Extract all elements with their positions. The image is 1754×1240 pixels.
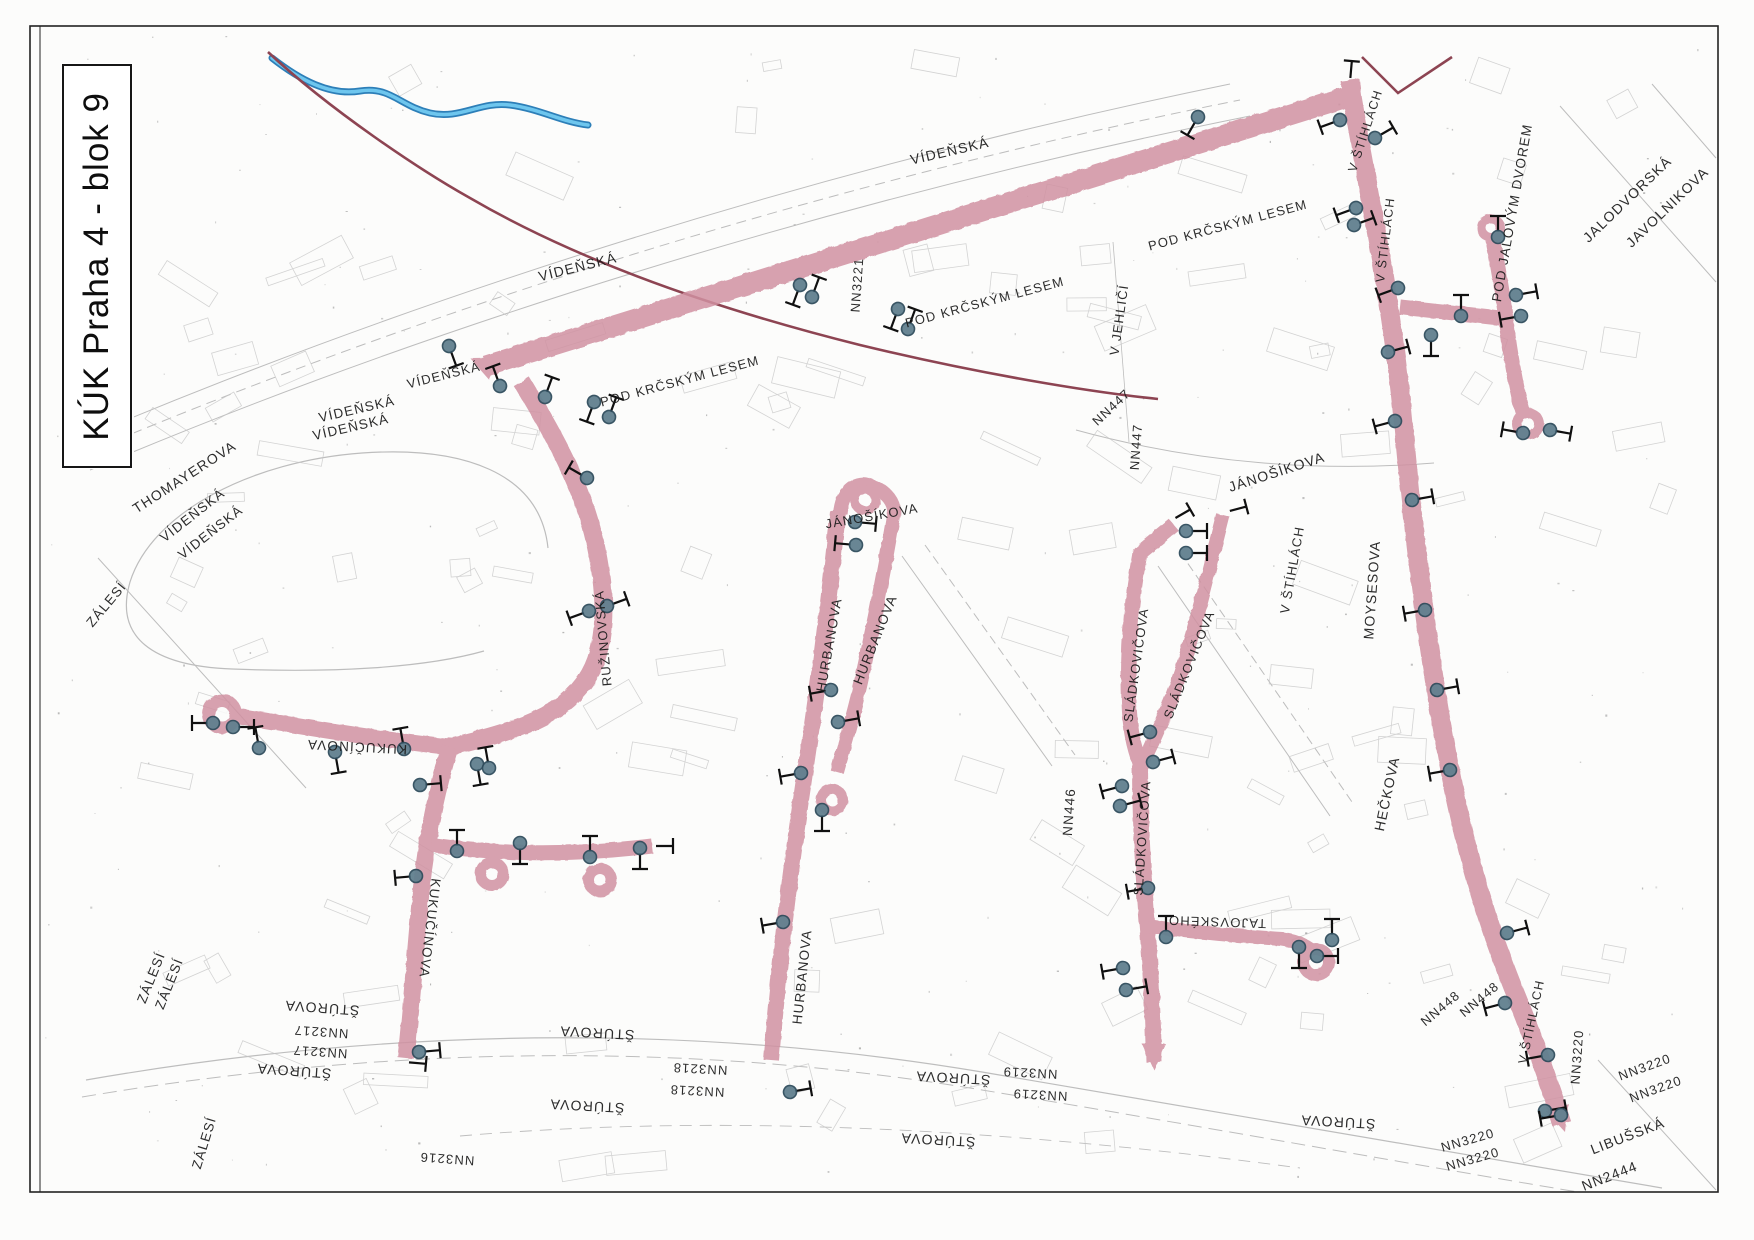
marker-tee: [814, 815, 830, 831]
building-outline: [955, 756, 1004, 794]
speckle: [95, 813, 96, 814]
building-outline: [1612, 422, 1665, 451]
speckle: [418, 1142, 420, 1144]
marker-dot: [634, 842, 647, 855]
speckle: [972, 352, 974, 354]
speckle: [235, 529, 236, 531]
speckle: [372, 1078, 374, 1079]
speckle: [72, 680, 73, 682]
speckle: [746, 302, 747, 304]
marker-dot: [1542, 422, 1557, 437]
speckle: [922, 128, 924, 130]
building-outline: [1650, 483, 1677, 514]
speckle: [250, 652, 252, 654]
building-outline: [389, 64, 422, 96]
speckle: [149, 1111, 150, 1112]
speckle: [1503, 848, 1504, 850]
speckle: [619, 286, 621, 288]
building-outline: [681, 546, 712, 579]
building-outline: [1267, 328, 1335, 371]
street-label: POD KRČSKÝM LESEM: [599, 352, 761, 409]
background-street-line: [90, 116, 1250, 470]
speckle: [1127, 186, 1128, 188]
building-outline: [476, 521, 497, 537]
street-label: NN3217: [293, 1023, 349, 1042]
speckle: [794, 224, 796, 225]
building-outline: [1001, 617, 1068, 657]
street-label: MOYSESOVA: [1360, 540, 1383, 640]
building-outline: [457, 568, 483, 593]
speckle: [430, 526, 431, 528]
street-label: NN3216: [419, 1150, 475, 1169]
speckle: [773, 429, 775, 431]
speckle: [1459, 347, 1461, 348]
building-outline: [1533, 341, 1586, 370]
speckle: [259, 104, 260, 105]
building-outline: [359, 256, 396, 280]
building-outline: [266, 258, 325, 285]
tee-symbol: [1228, 499, 1249, 519]
speckle: [628, 505, 629, 507]
speckle: [1119, 417, 1121, 419]
marker-dot: [1114, 778, 1130, 794]
marker-dot: [514, 837, 527, 850]
speckle: [340, 267, 341, 268]
building-outline: [747, 384, 800, 428]
marker-dot: [816, 804, 829, 817]
background-street-line: [1652, 84, 1716, 158]
speckle: [747, 269, 749, 270]
speckle: [332, 647, 334, 648]
building-outline: [1513, 1123, 1562, 1163]
speckle: [1322, 412, 1324, 414]
building-outline: [958, 517, 1014, 550]
speckle: [1495, 536, 1496, 537]
speckle: [760, 858, 761, 860]
speckle: [562, 632, 564, 633]
speckle: [158, 950, 159, 951]
speckle: [1034, 837, 1036, 839]
speckle: [661, 1078, 663, 1080]
building-outline: [170, 557, 203, 588]
marker-tee: [1191, 545, 1207, 561]
speckle: [347, 444, 348, 446]
street-label: POD JALOVÝM DVOREM: [1489, 123, 1535, 304]
building-outline: [386, 811, 411, 833]
speckle: [48, 924, 50, 925]
marker-dot: [584, 851, 597, 864]
speckle: [1352, 584, 1353, 586]
building-outline: [1600, 327, 1640, 358]
survey-marker: [1542, 421, 1572, 442]
speckle: [1081, 630, 1083, 632]
building-outline: [1178, 156, 1247, 193]
speckle: [152, 37, 153, 38]
speckle: [1453, 1087, 1454, 1088]
speckle: [549, 1030, 551, 1032]
speckle: [987, 917, 988, 919]
street-labels: VÍDEŇSKÁVÍDEŇSKÁVÍDEŇSKÁVÍDEŇSKÁVÍDEŇSKÁ…: [83, 88, 1711, 1194]
speckle: [157, 1140, 159, 1141]
speckle: [430, 984, 431, 986]
street-label: NN3220: [1568, 1029, 1587, 1085]
speckle: [1044, 104, 1046, 105]
speckle: [848, 1069, 850, 1070]
marker-dot: [1160, 931, 1173, 944]
turnaround-loop-hole: [486, 868, 498, 880]
speckle: [441, 71, 443, 72]
speckle: [278, 701, 279, 702]
building-outline: [1470, 57, 1511, 94]
marker-dot: [890, 301, 907, 318]
building-outline: [184, 318, 213, 342]
street-label: V ŠTÍHLÁCH: [1277, 525, 1307, 615]
speckle: [727, 584, 728, 586]
speckle: [1534, 859, 1535, 860]
street-label: NN2444: [1579, 1158, 1639, 1194]
speckle: [841, 1034, 842, 1035]
route-arrowhead: [1142, 1044, 1166, 1070]
speckle: [894, 824, 896, 826]
speckle: [589, 945, 590, 946]
speckle: [232, 1160, 233, 1161]
building-outline: [762, 60, 782, 72]
street-label: THOMAYEROVA: [130, 438, 239, 517]
speckle: [706, 414, 707, 416]
speckle: [1109, 1116, 1111, 1118]
speckle: [995, 58, 997, 60]
building-outline: [1269, 665, 1313, 689]
speckle: [507, 333, 509, 335]
marker-dot: [1311, 950, 1324, 963]
tee-symbol: [1342, 60, 1359, 78]
building-outline: [1391, 707, 1415, 736]
survey-marker: [1508, 283, 1538, 304]
survey-marker: [1324, 919, 1340, 947]
speckle: [1176, 268, 1177, 270]
marker-dot: [1180, 547, 1193, 560]
street-label: ŠTÚROVA: [549, 1096, 625, 1116]
building-outline: [1084, 1130, 1115, 1154]
building-outline: [1062, 865, 1121, 916]
building-outline: [656, 649, 725, 675]
speckle: [1389, 983, 1391, 984]
scanned-map-page: VÍDEŇSKÁVÍDEŇSKÁVÍDEŇSKÁVÍDEŇSKÁVÍDEŇSKÁ…: [0, 0, 1754, 1240]
speckle: [617, 648, 619, 649]
building-outline: [1506, 879, 1550, 919]
speckle: [385, 1149, 386, 1150]
tee-symbol: [1171, 503, 1194, 525]
speckle: [960, 713, 961, 715]
street-label: NN447: [1127, 423, 1145, 470]
speckle: [1572, 590, 1574, 591]
speckle: [1094, 203, 1096, 204]
marker-dot: [227, 721, 240, 734]
building-outline: [1607, 89, 1638, 119]
speckle: [1168, 1114, 1169, 1115]
speckle: [1302, 497, 1304, 499]
street-label: NN3219: [1002, 1064, 1058, 1082]
speckle: [373, 435, 375, 436]
speckle: [859, 1047, 861, 1049]
speckle: [485, 891, 487, 892]
marker-dot: [804, 289, 821, 306]
speckle: [1038, 1106, 1039, 1107]
speckle: [619, 207, 621, 208]
marker-dot: [1115, 960, 1130, 975]
marker-dot: [207, 717, 220, 730]
building-outline: [158, 261, 218, 307]
speckle: [424, 1057, 425, 1059]
speckle: [266, 1164, 267, 1166]
map-title-box: KÚK Praha 4 - blok 9: [62, 64, 132, 468]
building-outline: [506, 152, 574, 200]
speckle: [364, 229, 366, 230]
street-label: LIBUŠSKÁ: [1588, 1114, 1667, 1157]
street-label: ZÁLESÍ: [83, 579, 129, 630]
street-label: ŠTÚROVA: [559, 1023, 635, 1043]
speckle: [258, 932, 259, 933]
speckle: [1447, 128, 1449, 129]
speckle: [1348, 409, 1350, 411]
speckle: [1642, 672, 1643, 673]
speckle: [1195, 953, 1197, 954]
street-label: POD KRČSKÝM LESEM: [1147, 196, 1309, 253]
building-outline: [512, 424, 538, 449]
building-outline: [290, 235, 354, 285]
speckle: [1345, 614, 1347, 616]
speckle: [188, 702, 189, 704]
speckle: [677, 483, 678, 484]
street-label: ŠTÚROVA: [1300, 1112, 1376, 1132]
street-label: ŠTÚROVA: [284, 998, 360, 1019]
building-outline: [1249, 957, 1277, 988]
speckle: [1106, 763, 1107, 765]
speckle: [1452, 129, 1453, 131]
speckle: [500, 691, 502, 692]
speckle: [1297, 1176, 1299, 1178]
map-content: VÍDEŇSKÁVÍDEŇSKÁVÍDEŇSKÁVÍDEŇSKÁVÍDEŇSKÁ…: [45, 36, 1716, 1205]
survey-marker: [814, 804, 830, 832]
survey-marker: [1499, 920, 1530, 943]
survey-marker: [1180, 545, 1208, 561]
speckle: [1672, 1014, 1673, 1016]
building-outline: [333, 553, 357, 582]
speckle: [404, 331, 405, 332]
speckle: [1305, 281, 1306, 282]
building-outline: [1602, 944, 1626, 962]
speckle: [316, 113, 317, 114]
building-outline: [806, 358, 865, 386]
survey-marker: [782, 1080, 812, 1101]
speckle: [495, 435, 497, 436]
building-outline: [1216, 619, 1236, 630]
building-outline: [138, 763, 193, 790]
speckle: [1063, 352, 1065, 354]
street-label: ŠTÚROVA: [900, 1130, 976, 1150]
speckle: [45, 1038, 46, 1039]
building-outline: [1055, 740, 1099, 758]
street-label: NN3218: [672, 1060, 728, 1078]
speckle: [1505, 793, 1507, 795]
speckle: [766, 775, 768, 776]
speckle: [902, 1066, 903, 1067]
building-outline: [671, 705, 738, 731]
speckle: [1223, 350, 1224, 351]
boundary-line: [1362, 57, 1452, 93]
marker-dot: [413, 778, 427, 792]
speckle: [118, 869, 119, 870]
building-outline: [1188, 990, 1246, 1025]
speckle: [950, 1054, 952, 1056]
building-outline: [1030, 820, 1085, 866]
building-outline: [736, 107, 758, 134]
marker-dot: [1513, 308, 1528, 323]
speckle: [157, 121, 158, 123]
building-outline: [628, 742, 686, 776]
speckle: [479, 625, 480, 627]
map-canvas: VÍDEŇSKÁVÍDEŇSKÁVÍDEŇSKÁVÍDEŇSKÁVÍDEŇSKÁ…: [0, 0, 1754, 1240]
marker-dot: [1293, 941, 1306, 954]
speckle: [1208, 508, 1209, 509]
speckle: [929, 991, 930, 993]
building-outline: [363, 1073, 428, 1088]
speckle: [782, 756, 783, 758]
speckle: [549, 320, 551, 321]
building-outline: [324, 899, 370, 924]
map-title: KÚK Praha 4 - blok 9: [77, 92, 117, 441]
speckle: [616, 752, 617, 754]
speckle: [1087, 896, 1088, 898]
turnaround-loop-hole: [826, 794, 838, 806]
street-label: JALODVORSKÁ: [1580, 153, 1675, 246]
marker-dot: [1189, 108, 1207, 126]
marker-dot: [1180, 525, 1193, 538]
speckle: [347, 911, 348, 912]
turnaround-loop-hole: [859, 494, 871, 506]
speckle: [239, 170, 241, 171]
building-outline: [1080, 244, 1111, 266]
speckle: [634, 55, 635, 57]
speckle: [747, 80, 748, 82]
speckle: [219, 865, 221, 867]
speckle: [1015, 333, 1016, 335]
building-outline: [980, 431, 1040, 465]
marker-dot: [1118, 982, 1133, 997]
speckle: [87, 59, 89, 60]
highlighted-road: [450, 382, 603, 747]
background-street-line: [98, 558, 306, 788]
building-outline: [204, 953, 231, 983]
speckle: [1697, 49, 1698, 51]
marker-dot: [1326, 934, 1339, 947]
speckle: [1279, 129, 1281, 131]
speckle: [1346, 237, 1348, 238]
speckle: [1270, 141, 1271, 143]
building-outline: [1561, 966, 1610, 983]
street-label: VÍDEŇSKÁ: [909, 134, 991, 168]
speckle: [1057, 971, 1059, 972]
marker-tee: [1423, 340, 1439, 356]
building-outline: [1340, 431, 1390, 457]
street-label: NN3219: [1012, 1086, 1068, 1104]
speckle: [725, 448, 727, 449]
speckle: [325, 284, 326, 285]
building-outline: [167, 593, 188, 611]
building-outline: [257, 441, 324, 467]
survey-marker: [1101, 959, 1131, 980]
speckle: [529, 552, 531, 554]
speckle: [1108, 129, 1110, 131]
speckle: [751, 53, 752, 55]
street-label: NN448: [1457, 979, 1502, 1020]
marker-tee: [1191, 523, 1207, 539]
speckle: [402, 110, 404, 111]
background-street-line: [126, 452, 548, 670]
survey-marker: [1180, 523, 1208, 539]
street-label: VÍDEŇSKÁ: [537, 249, 619, 284]
marker-dot: [492, 378, 509, 395]
building-outline: [1539, 512, 1601, 546]
building-outline: [1300, 1012, 1323, 1030]
speckle: [491, 710, 492, 711]
speckle: [846, 833, 847, 834]
street-label: ŠTÚROVA: [256, 1061, 332, 1082]
speckle: [381, 1126, 382, 1128]
speckle: [1465, 80, 1466, 81]
speckle: [1384, 938, 1386, 939]
speckle: [1318, 237, 1320, 238]
speckle: [1305, 932, 1307, 934]
survey-marker: [802, 275, 826, 306]
speckle: [544, 251, 546, 253]
building-outline: [1289, 744, 1333, 773]
turnaround-loop-hole: [594, 874, 606, 886]
speckle: [451, 932, 452, 933]
speckle: [553, 416, 554, 417]
building-outline: [1404, 800, 1428, 820]
speckle: [1327, 626, 1328, 628]
speckle: [921, 337, 922, 339]
speckle: [176, 1100, 178, 1101]
speckle: [90, 907, 92, 909]
speckle: [1580, 762, 1581, 763]
building-outline: [1188, 264, 1246, 287]
speckle: [58, 712, 60, 714]
speckle: [868, 881, 870, 882]
marker-dot: [849, 538, 863, 552]
speckle: [1642, 888, 1643, 890]
speckle: [1367, 993, 1368, 994]
building-outline: [817, 1099, 846, 1131]
speckle: [51, 544, 52, 545]
building-outline: [233, 638, 268, 663]
building-outline: [1271, 909, 1330, 929]
speckle: [164, 374, 165, 375]
speckle: [225, 36, 227, 37]
building-outline: [670, 749, 708, 769]
background-street-line: [88, 100, 1240, 452]
speckle: [496, 669, 498, 670]
speckle: [1589, 1034, 1590, 1036]
speckle: [391, 108, 392, 109]
speckle: [202, 1085, 203, 1086]
speckle: [283, 587, 285, 589]
speckle: [568, 317, 569, 318]
background-street-line: [460, 1125, 1300, 1168]
marker-dot: [441, 338, 458, 355]
speckle: [765, 1088, 766, 1089]
